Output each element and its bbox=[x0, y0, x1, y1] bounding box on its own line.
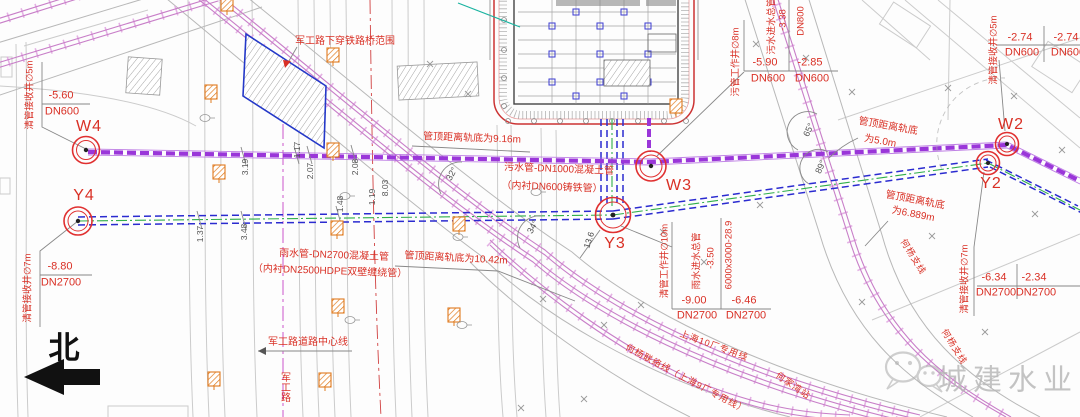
w4-dn: DN600 bbox=[45, 107, 79, 118]
y3-elev-2: -6.46 bbox=[731, 296, 756, 307]
manhole-w2 bbox=[996, 133, 1019, 156]
dim-1-19: 1.19 bbox=[368, 189, 377, 206]
y4-elev: -8.80 bbox=[47, 262, 72, 273]
manhole-w2-label: W2 bbox=[998, 117, 1024, 133]
w3-elev-2: -2.85 bbox=[797, 58, 822, 69]
w2-dn-1: DN600 bbox=[1005, 48, 1039, 59]
y2-elev-2: -2.34 bbox=[1021, 273, 1046, 284]
watermark-text: 城建水业 bbox=[938, 367, 1078, 396]
y3-inlet-name: 雨水进水总管 bbox=[692, 232, 702, 289]
survey-leader-teal bbox=[458, 3, 520, 27]
w3-inlet-name: 污水进水总管 bbox=[767, 0, 777, 55]
dim-1-48: 1.48 bbox=[336, 196, 345, 213]
y3-shaft-note: 清管工作井∅10m bbox=[660, 224, 670, 298]
y2-dn-1: DN2700 bbox=[976, 288, 1016, 299]
y2-elev-1: -6.34 bbox=[981, 273, 1006, 284]
dim-3-48: 3.48 bbox=[240, 224, 249, 241]
w3-dn-1: DN600 bbox=[751, 74, 785, 85]
road-name-label: 军工路 bbox=[277, 372, 292, 402]
y3-dn-2: DN2700 bbox=[726, 311, 766, 322]
dim-1-37: 1.37 bbox=[196, 226, 205, 243]
w3-inlet-elev: -3.38 bbox=[778, 9, 788, 31]
pump-station-site bbox=[458, 0, 698, 124]
w4-elev: -5.60 bbox=[48, 91, 73, 102]
underpass-zone-label: 军工路下穿铁路桥范围 bbox=[295, 37, 395, 47]
dim-8-03: 8.03 bbox=[381, 180, 390, 197]
manhole-y4-label: Y4 bbox=[73, 188, 95, 204]
manhole-y4 bbox=[64, 207, 92, 235]
plan-drawing: W4 Y4 W3 Y3 W2 Y2 清管接收井∅5m 清管接收井∅7m 污管工作… bbox=[0, 0, 1080, 417]
dim-2-07: 2.07 bbox=[306, 163, 315, 180]
centerline-arrowhead bbox=[258, 347, 266, 355]
y3-inlet-elev: -3.50 bbox=[706, 247, 716, 269]
w3-inlet-dn: DN800 bbox=[796, 6, 806, 36]
road-centerline-label: 军工路道路中心线 bbox=[268, 338, 348, 348]
w3-elev-1: -5.90 bbox=[752, 58, 777, 69]
red-road-centerline bbox=[370, 0, 381, 417]
y4-shaft-note: 清管接收井∅7m bbox=[23, 254, 33, 323]
wechat-logo-icon bbox=[886, 353, 942, 393]
dim-3-19: 3.19 bbox=[241, 159, 250, 176]
y3-inlet-size: 6000x3000-28.9 bbox=[724, 221, 734, 290]
dim-2-08: 2.08 bbox=[351, 159, 360, 176]
y3-dn-1: DN2700 bbox=[677, 311, 717, 322]
dim-1-17: 1.17 bbox=[293, 142, 302, 159]
manhole-w4-label: W4 bbox=[76, 119, 102, 135]
w2-elev-1: -2.74 bbox=[1007, 33, 1032, 44]
y2-dn-2: DN2700 bbox=[1016, 288, 1056, 299]
manhole-y2-label: Y2 bbox=[980, 176, 1002, 192]
manhole-w3 bbox=[636, 151, 666, 181]
w2-dn-2: DN600 bbox=[1051, 48, 1080, 59]
w3-dn-2: DN600 bbox=[795, 74, 829, 85]
manhole-y2 bbox=[977, 152, 1000, 175]
north-label: 北 bbox=[49, 333, 80, 364]
w4-shaft-note: 清管接收井∅5m bbox=[25, 61, 35, 130]
y4-dn: DN2700 bbox=[41, 278, 81, 289]
drawing-canvas bbox=[0, 0, 1080, 417]
y2-shaft-note: 清管接收井∅7m bbox=[960, 245, 970, 314]
manhole-y3-label: Y3 bbox=[604, 236, 626, 252]
manhole-w4 bbox=[73, 137, 100, 164]
w3-shaft-note: 污管工作井∅8m bbox=[731, 28, 741, 97]
w2-elev-2: -2.74 bbox=[1053, 33, 1078, 44]
manhole-w3-label: W3 bbox=[666, 178, 692, 194]
w2-shaft-note: 清管接收井∅5m bbox=[989, 16, 999, 85]
y3-elev-1: -9.00 bbox=[681, 296, 706, 307]
